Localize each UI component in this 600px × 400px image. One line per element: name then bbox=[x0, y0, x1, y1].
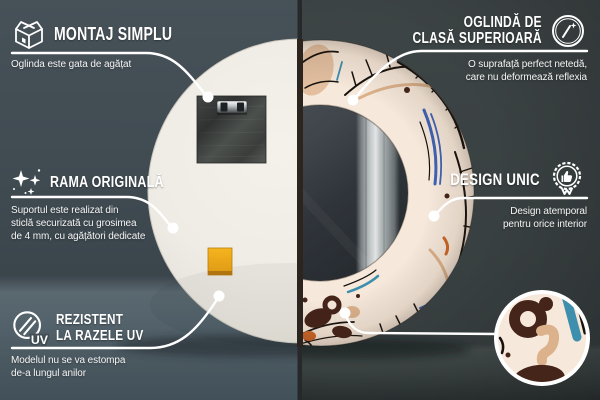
uv-circle-icon: UV bbox=[11, 309, 49, 347]
callout-subtitle: Design atemporal pentru orice interior bbox=[503, 205, 587, 231]
thumbs-up-icon bbox=[562, 171, 573, 182]
callout-original-frame: RAMA ORIGINALĂ Suportul este realizat di… bbox=[11, 167, 211, 243]
box-icon bbox=[11, 16, 47, 52]
mirror-shine-icon bbox=[549, 12, 587, 50]
uv-icon-label: UV bbox=[31, 333, 49, 347]
callout-dot-uv bbox=[214, 291, 225, 302]
callout-title: OGLINDĂ DE CLASĂ SUPERIOARĂ bbox=[413, 15, 542, 48]
callout-subtitle: Suportul este realizat din sticlă securi… bbox=[11, 204, 211, 243]
callout-title: RAMA ORIGINALĂ bbox=[50, 174, 164, 192]
callout-easy-mounting: MONTAJ SIMPLU Oglinda este gata de agăța… bbox=[11, 16, 211, 71]
pattern-detail-zoom bbox=[496, 292, 589, 395]
protection-sticker bbox=[208, 248, 232, 275]
callout-subtitle: Oglinda este gata de agățat bbox=[11, 58, 211, 71]
hanger-bracket bbox=[217, 101, 247, 113]
mounting-plate bbox=[197, 96, 266, 163]
callout-dot-premium bbox=[348, 95, 359, 106]
callout-title: DESIGN UNIC bbox=[450, 170, 540, 190]
callout-dot-montaj bbox=[203, 92, 214, 103]
callout-unique-design: DESIGN UNIC Design atemporal pentru oric… bbox=[387, 160, 587, 231]
mirror-edge-side bbox=[297, 39, 303, 347]
award-ribbon-icon bbox=[547, 160, 587, 200]
product-showcase: MONTAJ SIMPLU Oglinda este gata de agăța… bbox=[0, 0, 600, 400]
callout-subtitle: Modelul nu se va estompa de-a lungul ani… bbox=[11, 354, 221, 380]
callout-uv-resistant: UV REZISTENT LA RAZELE UV Modelul nu se … bbox=[11, 309, 221, 380]
callout-dot-detail bbox=[340, 308, 351, 319]
sparkles-icon bbox=[11, 167, 43, 199]
callout-title: MONTAJ SIMPLU bbox=[54, 24, 172, 45]
callout-premium-glass: OGLINDĂ DE CLASĂ SUPERIOARĂ O suprafață … bbox=[377, 12, 587, 84]
callout-title: REZISTENT LA RAZELE UV bbox=[56, 312, 144, 344]
callout-subtitle: O suprafață perfect netedă, care nu defo… bbox=[466, 58, 587, 84]
